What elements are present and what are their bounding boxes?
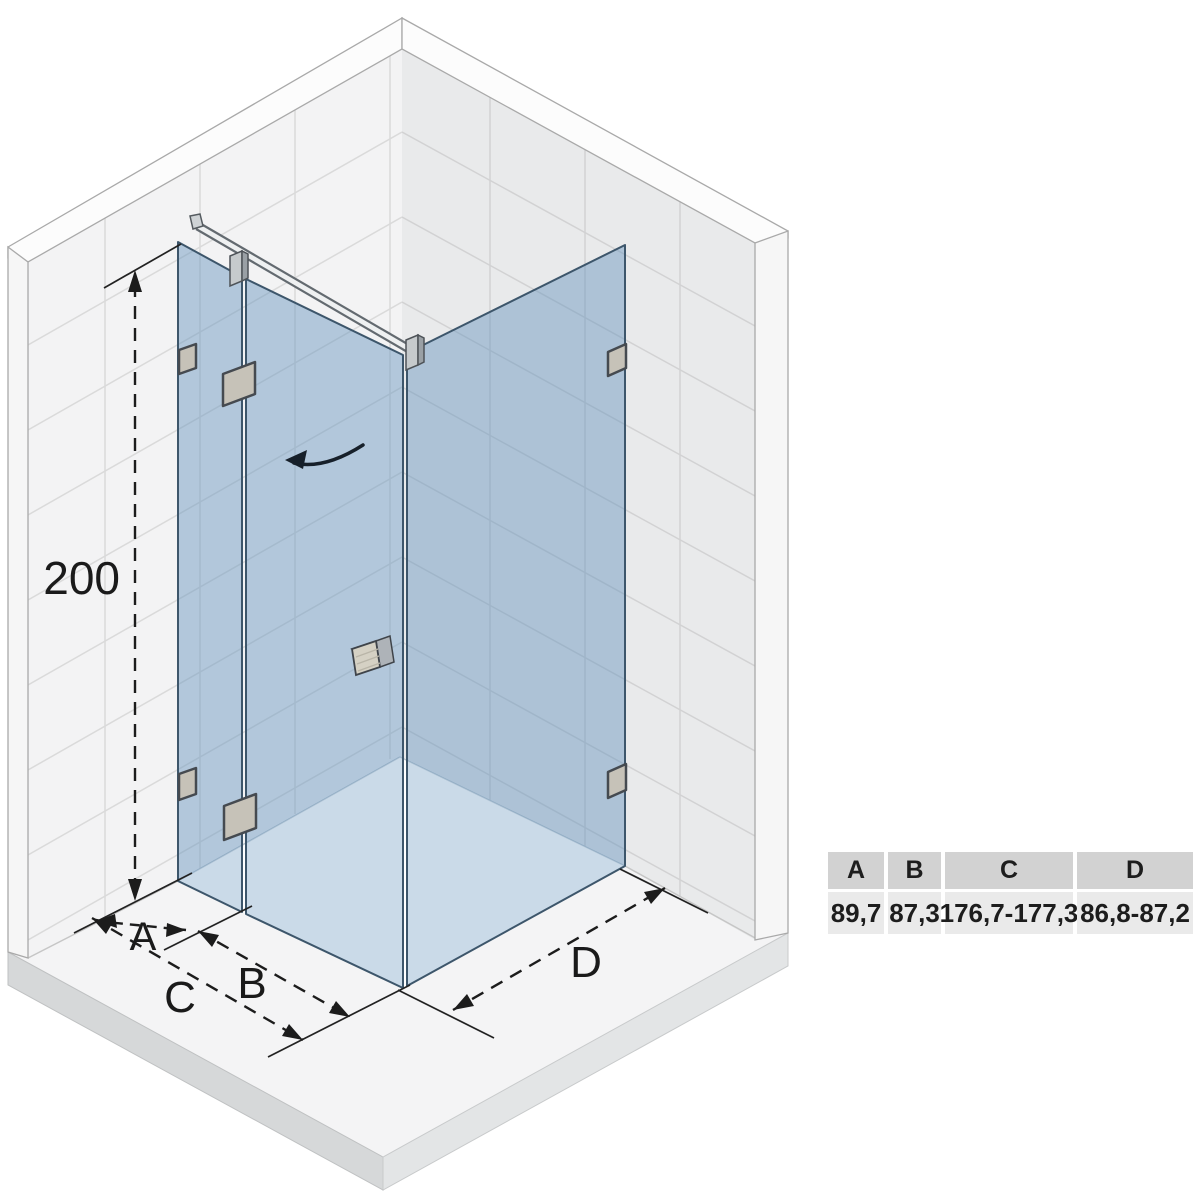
table-header-c: C xyxy=(945,852,1073,889)
dimensions-table: A B C D 89,7 87,3 176,7-177,3 86,8-87,2 xyxy=(828,852,1193,934)
dimension-label-a: A xyxy=(130,915,157,959)
table-header-b: B xyxy=(888,852,941,889)
dimension-label-b: B xyxy=(237,959,266,1008)
height-dimension-label: 200 xyxy=(43,552,120,604)
shower-enclosure-isometric-diagram: 200 A B C D xyxy=(0,0,1200,1200)
table-header-d: D xyxy=(1077,852,1193,889)
dimension-label-c: C xyxy=(164,973,196,1022)
dimension-label-d: D xyxy=(570,938,602,987)
table-value-c: 176,7-177,3 xyxy=(945,892,1073,934)
wall-bracket-bottom-left xyxy=(179,768,196,800)
table-value-b: 87,3 xyxy=(888,892,941,934)
right-wall-end-face xyxy=(755,231,788,940)
wall-bracket-top-left xyxy=(179,344,196,374)
table-value-d: 86,8-87,2 xyxy=(1077,892,1193,934)
left-wall-end-face xyxy=(8,247,28,958)
shower-enclosure-diagram-page: 200 A B C D A B C D 89,7 87,3 176,7-177,… xyxy=(0,0,1200,1200)
stabilizer-bar-end-cap xyxy=(190,214,203,229)
table-value-a: 89,7 xyxy=(828,892,884,934)
table-header-a: A xyxy=(828,852,884,889)
